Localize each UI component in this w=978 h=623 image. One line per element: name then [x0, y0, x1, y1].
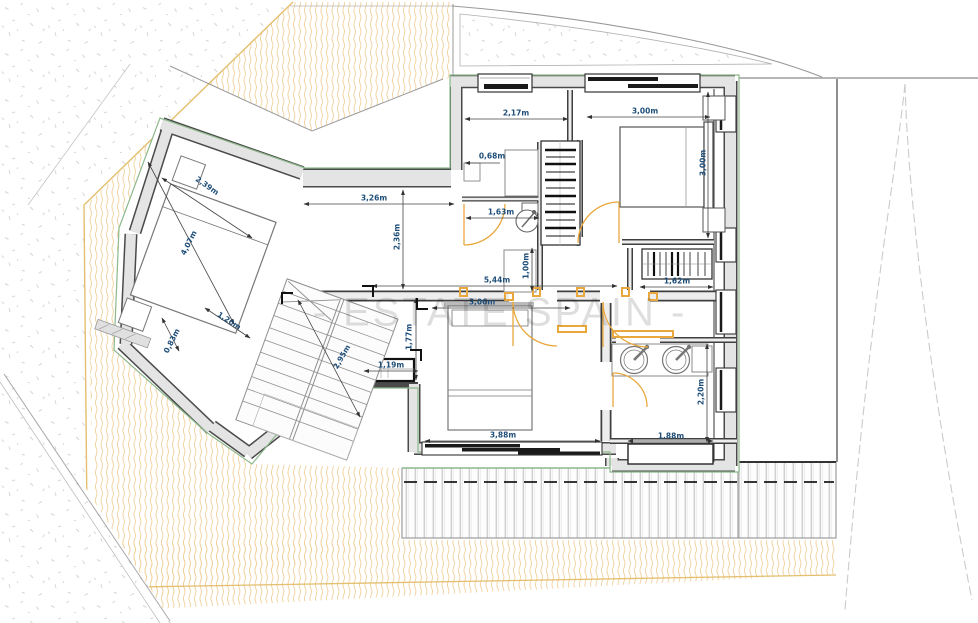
- bathroom-cabinet: [692, 346, 712, 372]
- sliding-door-top: [585, 74, 700, 92]
- dimension-label: 2,36m: [393, 224, 401, 250]
- sliding-door-bottom: [422, 442, 602, 455]
- dimension-label: 5,44m: [484, 276, 510, 284]
- bottom-right-niche: [628, 444, 713, 464]
- plot-boundary-right: [837, 79, 972, 610]
- wardrobe-column: [541, 141, 580, 245]
- bathroom-fixtures: [612, 344, 712, 376]
- dimension-label: 2,17m: [503, 109, 529, 117]
- dimension-label: 3,00m: [699, 150, 707, 176]
- dimension-label: 0,68m: [479, 152, 505, 160]
- terrace-deck: [402, 462, 836, 538]
- dimension-label: 2,20m: [697, 379, 705, 405]
- desk: [505, 150, 538, 196]
- side-table-2: [703, 208, 725, 232]
- chair: [464, 163, 480, 181]
- terrain-top-right-wedge: [452, 6, 978, 78]
- dimension-label: 1,88m: [658, 432, 684, 440]
- side-table-1: [703, 96, 725, 120]
- window-top-small: [478, 74, 532, 92]
- dimension-label: 3,88m: [490, 431, 516, 439]
- dimension-label: 3,26m: [361, 194, 387, 202]
- window-right-3: [716, 290, 736, 334]
- watermark: - ESTATE SPAIN -: [313, 291, 688, 336]
- dimension-label: 1,19m: [378, 361, 404, 369]
- window-right-2: [716, 228, 736, 262]
- dimension-label: 1,00m: [522, 253, 530, 279]
- dimension-label: 1,63m: [488, 208, 514, 216]
- dimension-label: 1,62m: [664, 277, 690, 285]
- closet-room-wardrobe: [642, 249, 712, 279]
- window-right-4: [716, 368, 736, 412]
- dimension-label: 3,00m: [632, 107, 658, 115]
- floor-plan-canvas: 2,17m3,00m0,68m1,63m3,00m3,26m2,36m1,00m…: [0, 0, 978, 623]
- bed-top-right: [620, 127, 704, 207]
